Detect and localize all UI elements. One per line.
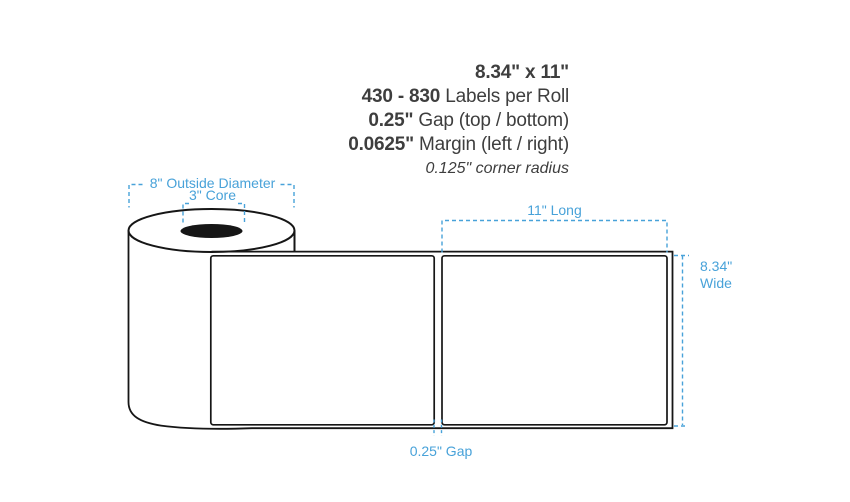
width-label: 8.34" Wide xyxy=(700,258,732,292)
length-bracket xyxy=(442,221,667,253)
label-roll-spec-figure: 8.34" x 11" 430 - 830 Labels per Roll 0.… xyxy=(0,0,850,502)
length-label: 11" Long xyxy=(442,203,667,218)
gap-label: 0.25" Gap xyxy=(406,444,476,459)
width-label-word: Wide xyxy=(700,275,732,292)
core-bracket xyxy=(183,204,245,224)
core-label: 3" Core xyxy=(182,188,243,203)
width-bracket xyxy=(674,256,689,427)
label-1 xyxy=(211,256,434,425)
label-2 xyxy=(442,256,667,425)
roll-core xyxy=(181,224,243,238)
width-label-value: 8.34" xyxy=(700,258,732,275)
label-roll-diagram xyxy=(0,0,850,502)
